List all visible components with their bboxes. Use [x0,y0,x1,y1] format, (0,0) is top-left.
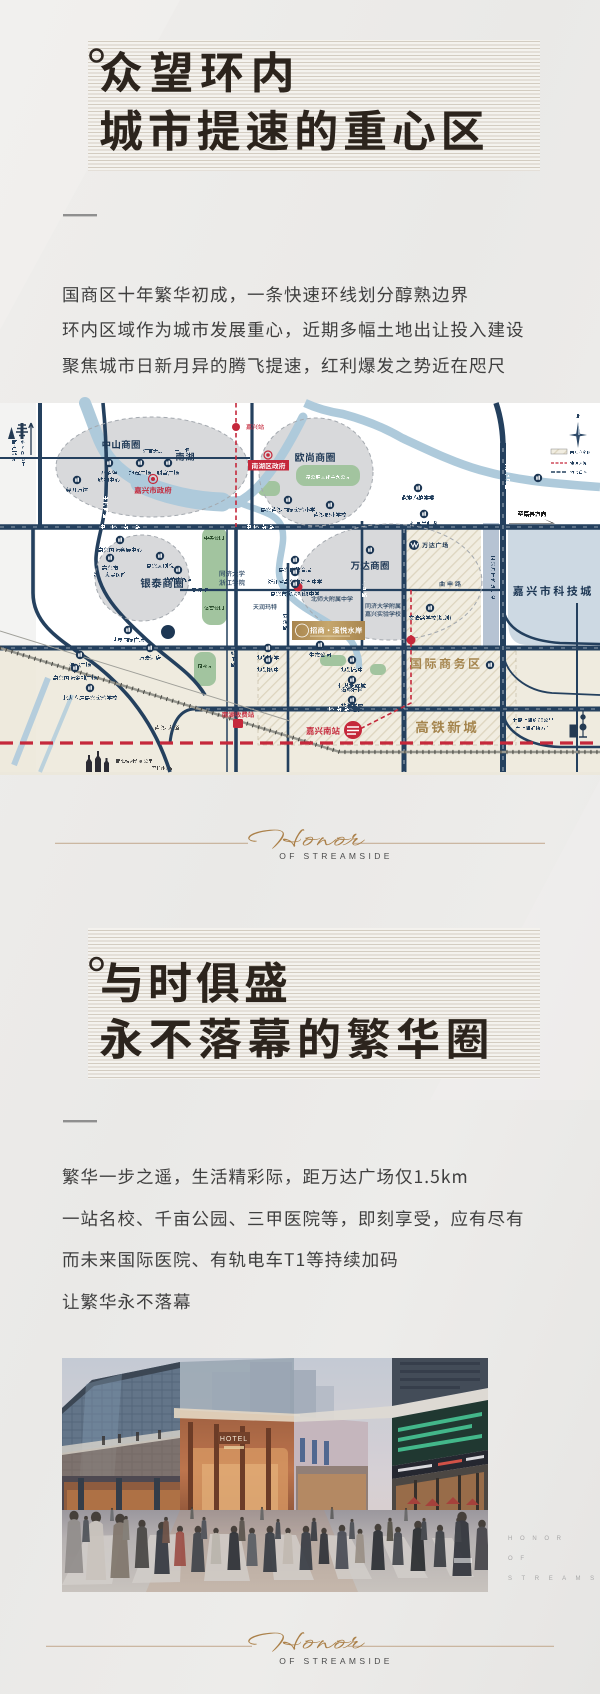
svg-text:OF STREAMSIDE: OF STREAMSIDE [279,1656,393,1666]
svg-text:O F: O F [508,1556,527,1562]
svg-text:H O N O R: H O N O R [508,1536,564,1542]
svg-text:S T R E A M S I D E: S T R E A M S I D E [508,1576,600,1582]
svg-text:OF STREAMSIDE: OF STREAMSIDE [279,851,393,861]
